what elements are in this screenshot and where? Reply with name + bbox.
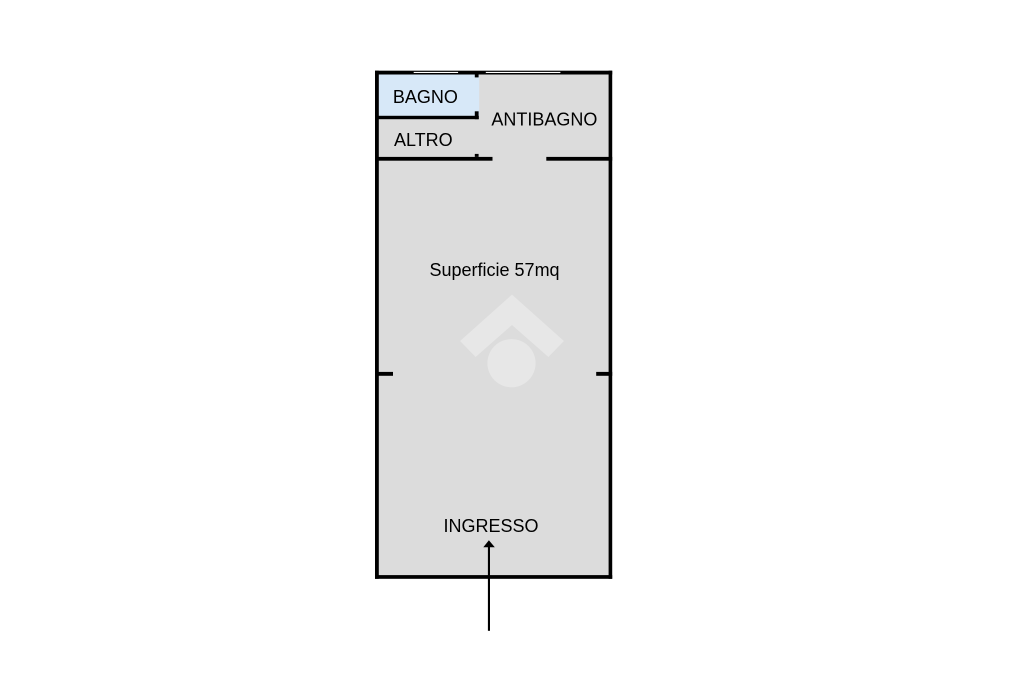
svg-text:BAGNO: BAGNO [393, 87, 458, 107]
svg-text:ALTRO: ALTRO [394, 130, 453, 150]
svg-text:INGRESSO: INGRESSO [444, 516, 539, 536]
svg-text:ANTIBAGNO: ANTIBAGNO [491, 109, 597, 129]
svg-text:Superficie 57mq: Superficie 57mq [430, 260, 560, 280]
